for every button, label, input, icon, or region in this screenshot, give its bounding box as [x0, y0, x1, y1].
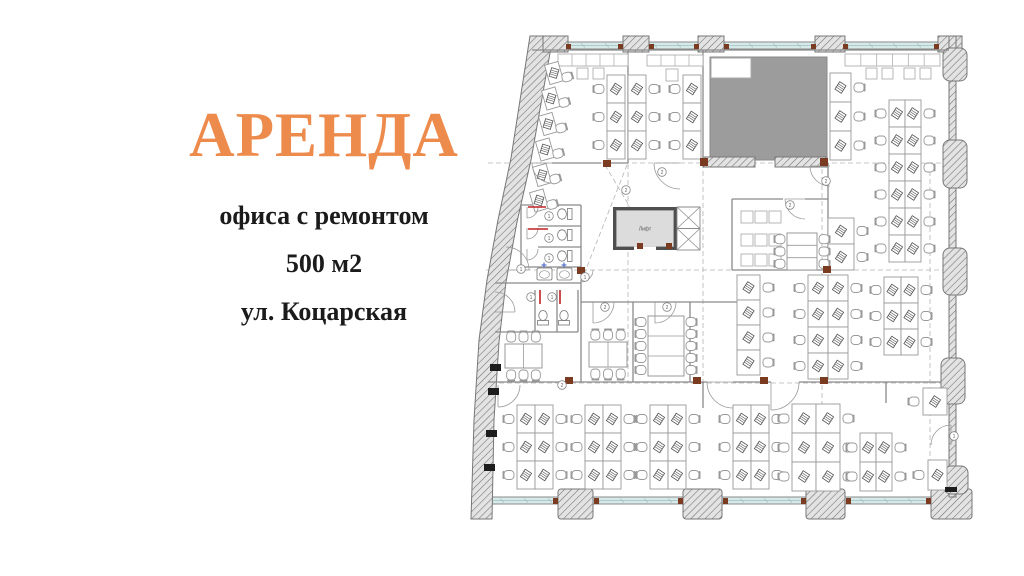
chair — [571, 443, 583, 452]
chair — [649, 141, 661, 150]
fp-brown — [618, 44, 623, 49]
fp-brown — [694, 44, 699, 49]
fp-arc — [498, 385, 520, 407]
chair — [851, 362, 863, 371]
fp-brown — [820, 158, 828, 166]
fp-bankd — [636, 405, 701, 489]
chair — [689, 443, 701, 452]
fp-sq — [741, 211, 753, 223]
fp-prect — [943, 48, 967, 81]
fp-bankd — [870, 277, 933, 355]
svg-text:2: 2 — [661, 170, 664, 176]
fp-banks — [830, 73, 866, 160]
fp-circ: 1 — [545, 254, 554, 263]
chair — [924, 136, 936, 145]
floor-plan: Лифт111111112222222 — [0, 0, 1024, 576]
chair — [686, 354, 698, 363]
chair — [636, 443, 648, 452]
chair — [843, 414, 855, 423]
chair — [649, 85, 661, 94]
chair — [686, 330, 698, 339]
fp-sq — [593, 68, 604, 79]
svg-text:1: 1 — [953, 434, 956, 440]
fp-circ: 2 — [663, 303, 672, 312]
fp-bankd — [719, 405, 784, 489]
chair — [558, 96, 572, 108]
fp-brown — [934, 44, 939, 49]
chair — [686, 366, 698, 375]
fp-sq — [577, 68, 588, 79]
fp-wc — [558, 230, 572, 241]
chair — [921, 312, 933, 321]
fp-arc — [527, 249, 538, 260]
fp-sq — [920, 68, 931, 79]
svg-text:2: 2 — [666, 305, 669, 311]
chair — [689, 471, 701, 480]
fp-black — [945, 487, 957, 492]
chair — [719, 443, 731, 452]
chair — [555, 122, 569, 134]
fp-sq — [741, 254, 753, 266]
svg-text:2: 2 — [604, 305, 607, 311]
fp-table — [635, 316, 698, 376]
chair — [924, 163, 936, 172]
chair — [763, 333, 775, 342]
fp-brown — [846, 498, 851, 504]
chair — [763, 308, 775, 317]
fp-sq — [866, 68, 877, 79]
chair — [794, 336, 806, 345]
fp-brown — [700, 158, 708, 166]
svg-text:1: 1 — [584, 275, 587, 281]
fp-brown — [603, 160, 611, 167]
chair — [571, 415, 583, 424]
fp-brown — [594, 498, 599, 504]
chair — [689, 415, 701, 424]
chair — [636, 415, 648, 424]
svg-text:2: 2 — [825, 179, 828, 185]
fp-black — [488, 388, 499, 395]
chair — [774, 247, 786, 256]
fp-brown — [820, 377, 828, 384]
fp-cab — [647, 55, 703, 66]
chair — [686, 318, 698, 327]
chair — [895, 443, 907, 452]
chair — [635, 330, 647, 339]
fp-prect — [943, 248, 967, 295]
chair — [556, 415, 568, 424]
chair — [778, 414, 790, 423]
chair — [875, 163, 887, 172]
fp-bankd — [794, 275, 863, 379]
fp-black — [490, 364, 501, 371]
fp-bankd — [503, 405, 568, 489]
fp-circ: 1 — [581, 273, 590, 282]
chair — [624, 471, 636, 480]
chair — [875, 109, 887, 118]
fp-brown — [666, 243, 672, 249]
fp-black — [486, 430, 497, 437]
chair — [635, 366, 647, 375]
chair — [507, 370, 516, 382]
chair — [571, 471, 583, 480]
fp-brown — [811, 44, 816, 49]
svg-text:1: 1 — [548, 236, 551, 242]
chair — [636, 471, 648, 480]
chair — [531, 331, 540, 343]
chair — [875, 244, 887, 253]
fp-win — [545, 42, 960, 49]
floor-plan-root: Лифт111111112222222 — [471, 36, 972, 519]
fp-circ: 1 — [545, 212, 554, 221]
fp-sq — [755, 254, 767, 266]
chair — [921, 338, 933, 347]
fp-table — [589, 329, 627, 381]
fp-bankd — [846, 433, 907, 491]
chair — [851, 284, 863, 293]
chair — [851, 336, 863, 345]
chair — [561, 71, 575, 83]
chair — [854, 141, 866, 150]
chair — [763, 358, 775, 367]
fp-prect — [943, 140, 967, 188]
fp-arc — [931, 425, 951, 445]
chair — [591, 369, 600, 381]
chair — [854, 112, 866, 121]
chair — [552, 147, 566, 159]
fp-bankd — [571, 405, 636, 489]
chair — [593, 85, 605, 94]
chair — [503, 415, 515, 424]
fp-circ: 2 — [786, 201, 795, 210]
chair — [546, 198, 560, 210]
fp-sq — [741, 234, 753, 246]
fp-circ: 2 — [658, 168, 667, 177]
fp-prect — [558, 489, 593, 519]
chair — [719, 415, 731, 424]
fp-banks — [593, 75, 626, 159]
fp-brown — [649, 44, 654, 49]
fp-prect — [703, 157, 755, 167]
chair — [669, 85, 681, 94]
chair — [870, 338, 882, 347]
chair — [851, 310, 863, 319]
svg-text:Лифт: Лифт — [639, 227, 652, 233]
chair — [519, 331, 528, 343]
chair — [556, 471, 568, 480]
chair — [624, 415, 636, 424]
fp-circ: 2 — [601, 303, 610, 312]
chair — [593, 141, 605, 150]
fp-prect — [775, 157, 827, 167]
fp-bankd — [875, 100, 936, 262]
chair — [819, 247, 831, 256]
fp-banks — [737, 275, 775, 375]
fp-table — [505, 331, 542, 382]
fp-cab — [558, 54, 628, 66]
fp-xshaft — [677, 207, 700, 250]
chair — [921, 286, 933, 295]
chair — [635, 318, 647, 327]
chair — [924, 244, 936, 253]
fp-arc — [707, 382, 733, 408]
chair — [591, 329, 600, 341]
fp-circ: 1 — [950, 432, 959, 441]
fp-brown — [724, 44, 729, 49]
fp-brown — [926, 498, 931, 504]
fp-sink — [537, 268, 552, 280]
fp-brown — [723, 498, 728, 504]
chair — [870, 286, 882, 295]
chair — [854, 83, 866, 92]
chair — [875, 190, 887, 199]
fp-sq — [769, 211, 781, 223]
chair — [778, 472, 790, 481]
fp-brown — [760, 377, 768, 384]
chair — [635, 354, 647, 363]
fp-prect — [806, 489, 845, 519]
chair — [519, 370, 528, 382]
chair — [857, 227, 869, 236]
svg-text:1: 1 — [548, 214, 551, 220]
chair — [924, 190, 936, 199]
fp-prect — [683, 489, 722, 519]
fp-circ: 1 — [548, 293, 557, 302]
chair — [604, 369, 613, 381]
chair — [774, 259, 786, 268]
chair — [686, 342, 698, 351]
fp-circ: 1 — [527, 293, 536, 302]
svg-text:2: 2 — [561, 383, 564, 389]
chair — [924, 109, 936, 118]
fp-banks — [828, 218, 869, 270]
fp-circ: 2 — [558, 381, 567, 390]
chair — [507, 331, 516, 343]
chair — [604, 329, 613, 341]
chair — [624, 443, 636, 452]
fp-banks — [669, 75, 702, 159]
chair — [763, 283, 775, 292]
fp-brown — [823, 266, 831, 273]
chair — [908, 397, 920, 406]
chair — [531, 370, 540, 382]
chair — [593, 113, 605, 122]
ad-slide: АРЕНДА офиса с ремонтом 500 м2 ул. Коцар… — [0, 0, 1024, 576]
chair — [649, 113, 661, 122]
chair — [778, 443, 790, 452]
fp-brown — [566, 44, 571, 49]
chair — [913, 471, 925, 480]
chair — [846, 472, 858, 481]
fp-circ: 2 — [822, 177, 831, 186]
fp-wc — [538, 311, 549, 326]
chair — [870, 312, 882, 321]
fp-cab — [845, 54, 940, 66]
chair — [819, 235, 831, 244]
fp-sq — [755, 211, 767, 223]
fp-brown — [693, 377, 701, 384]
fp-black — [484, 464, 495, 471]
chair — [616, 329, 625, 341]
fp-circ: 2 — [622, 186, 631, 195]
chair — [875, 136, 887, 145]
fp-sq — [666, 69, 678, 81]
svg-text:1: 1 — [551, 295, 554, 301]
svg-text:1: 1 — [530, 295, 533, 301]
fp-brown — [843, 44, 848, 49]
chair — [857, 253, 869, 262]
chair — [895, 472, 907, 481]
svg-text:2: 2 — [789, 203, 792, 209]
fp-circ: 1 — [545, 234, 554, 243]
fp-wc — [558, 251, 572, 262]
chair — [794, 284, 806, 293]
fp-brown — [678, 498, 683, 504]
chair — [669, 113, 681, 122]
fp-wc — [559, 311, 570, 326]
svg-text:2: 2 — [625, 188, 628, 194]
fp-sink — [557, 268, 572, 280]
svg-text:1: 1 — [548, 256, 551, 262]
fp-sq — [882, 68, 893, 79]
fp-wc — [558, 209, 572, 220]
fp-desk1 — [908, 388, 948, 415]
chair — [503, 443, 515, 452]
chair — [924, 217, 936, 226]
chair — [794, 310, 806, 319]
fp-table — [774, 233, 831, 270]
chair — [794, 362, 806, 371]
fp-brown — [801, 498, 806, 504]
chair — [719, 471, 731, 480]
fp-grect — [711, 58, 751, 78]
chair — [846, 443, 858, 452]
chair — [556, 443, 568, 452]
chair — [635, 342, 647, 351]
fp-sq — [755, 234, 767, 246]
chair — [774, 235, 786, 244]
fp-bankd — [778, 404, 855, 491]
fp-banks — [628, 75, 661, 159]
fp-arc — [654, 163, 680, 189]
fp-circ: 1 — [517, 265, 526, 274]
chair — [503, 471, 515, 480]
fp-brown — [637, 243, 643, 249]
fp-desk1 — [913, 460, 948, 490]
chair — [669, 141, 681, 150]
svg-text:1: 1 — [520, 267, 523, 273]
fp-brown — [553, 498, 558, 504]
chair — [875, 217, 887, 226]
fp-sq — [904, 68, 915, 79]
chair — [616, 369, 625, 381]
